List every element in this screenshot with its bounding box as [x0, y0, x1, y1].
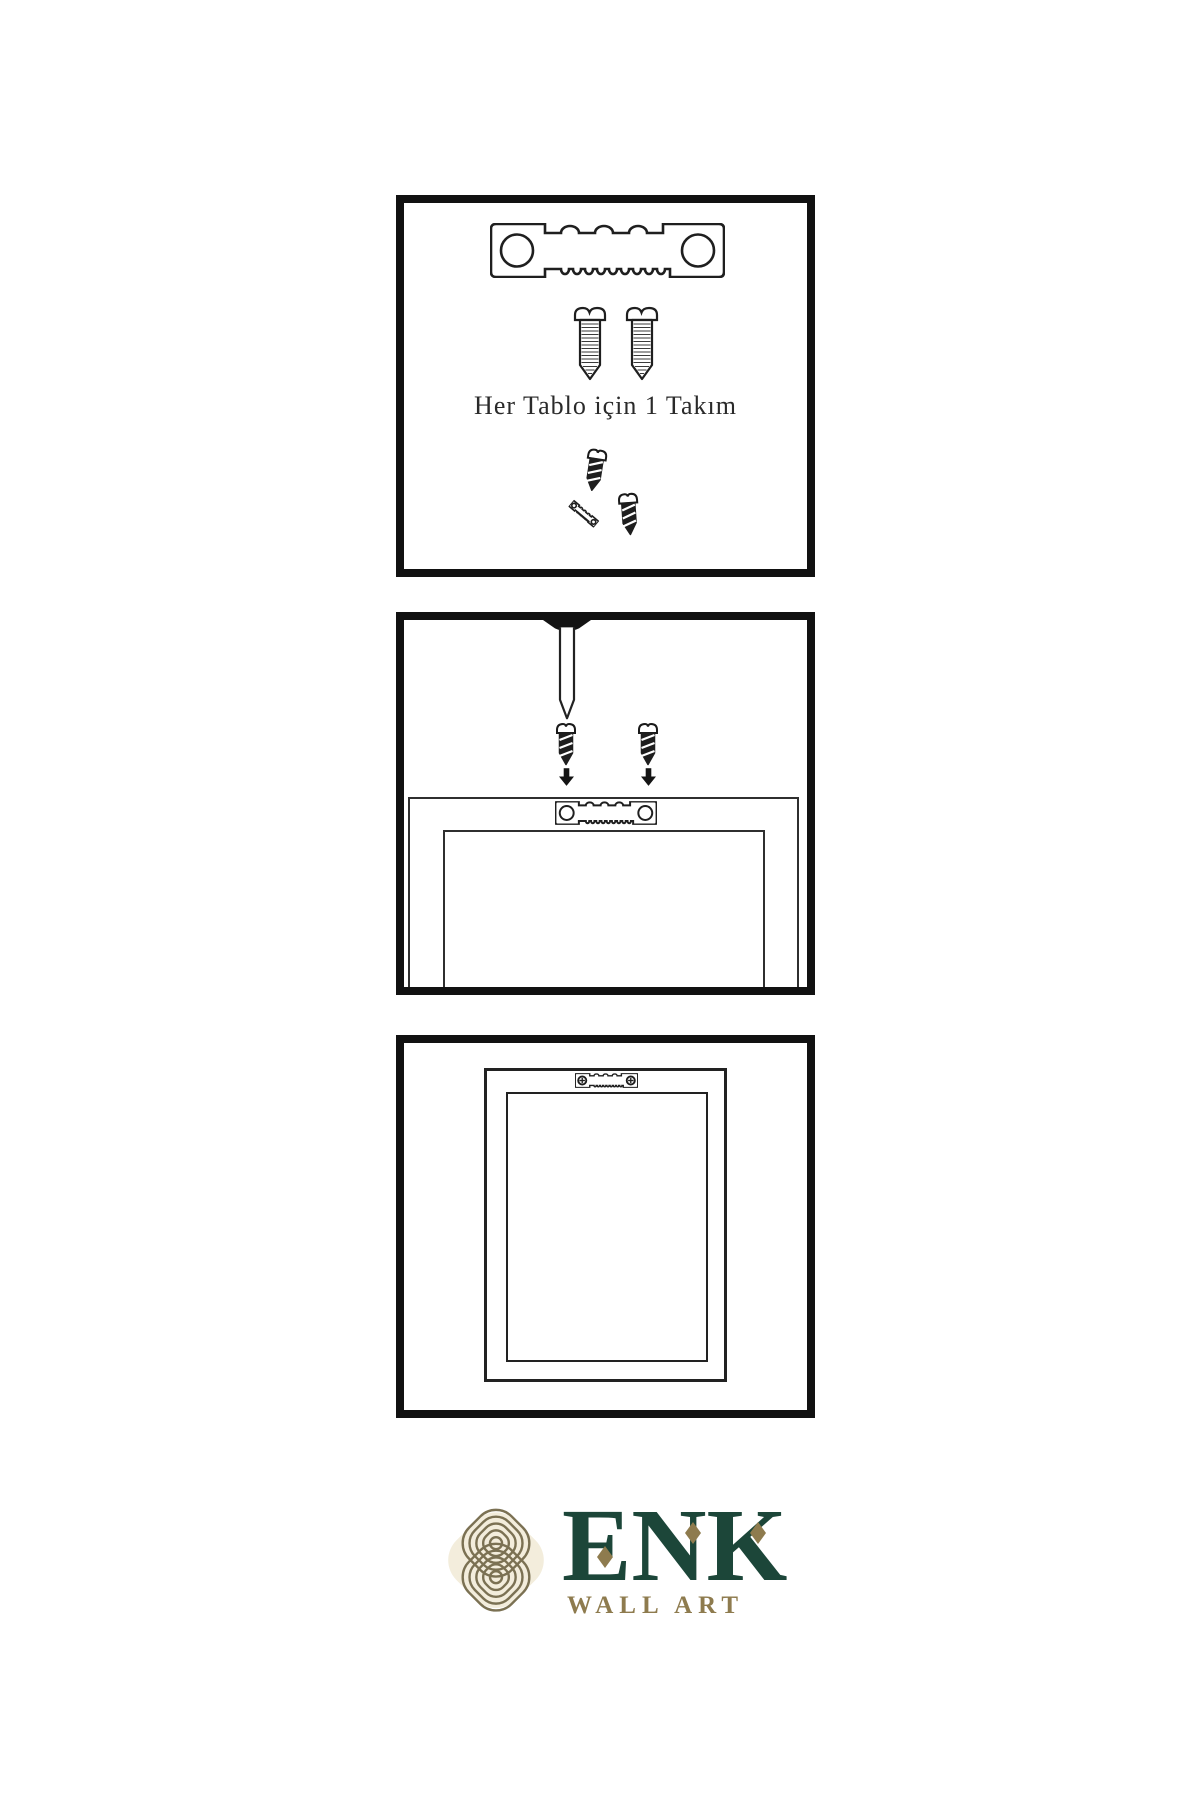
- sawtooth-hanger-icon: [490, 223, 725, 278]
- instruction-sheet: Her Tablo için 1 Takım: [0, 0, 1200, 1800]
- dark-screw-icon: [554, 721, 578, 767]
- screw-icon: [572, 305, 608, 383]
- frame-back-inner-outline: [443, 830, 765, 987]
- step3-hang-panel: [396, 1035, 815, 1418]
- arrow-down-icon: [559, 768, 574, 786]
- picture-frame-inner-outline: [506, 1092, 708, 1362]
- screw-icon: [624, 305, 660, 383]
- sawtooth-hanger-icon: [555, 801, 657, 825]
- step1-hardware-panel: Her Tablo için 1 Takım: [396, 195, 815, 577]
- dark-screw-icon: [636, 721, 660, 767]
- set-per-frame-label: Her Tablo için 1 Takım: [404, 391, 807, 421]
- brand-wordmark: ENK: [562, 1497, 787, 1596]
- enk-knot-logo-icon: [436, 1496, 556, 1630]
- mounted-hanger-icon: [575, 1073, 638, 1088]
- wall-nail-icon: [543, 620, 591, 722]
- hanger-mounting-icon: [559, 443, 659, 555]
- arrow-down-icon: [641, 768, 656, 786]
- step2-attach-panel: [396, 612, 815, 995]
- brand-tagline: WALL ART: [567, 1592, 744, 1620]
